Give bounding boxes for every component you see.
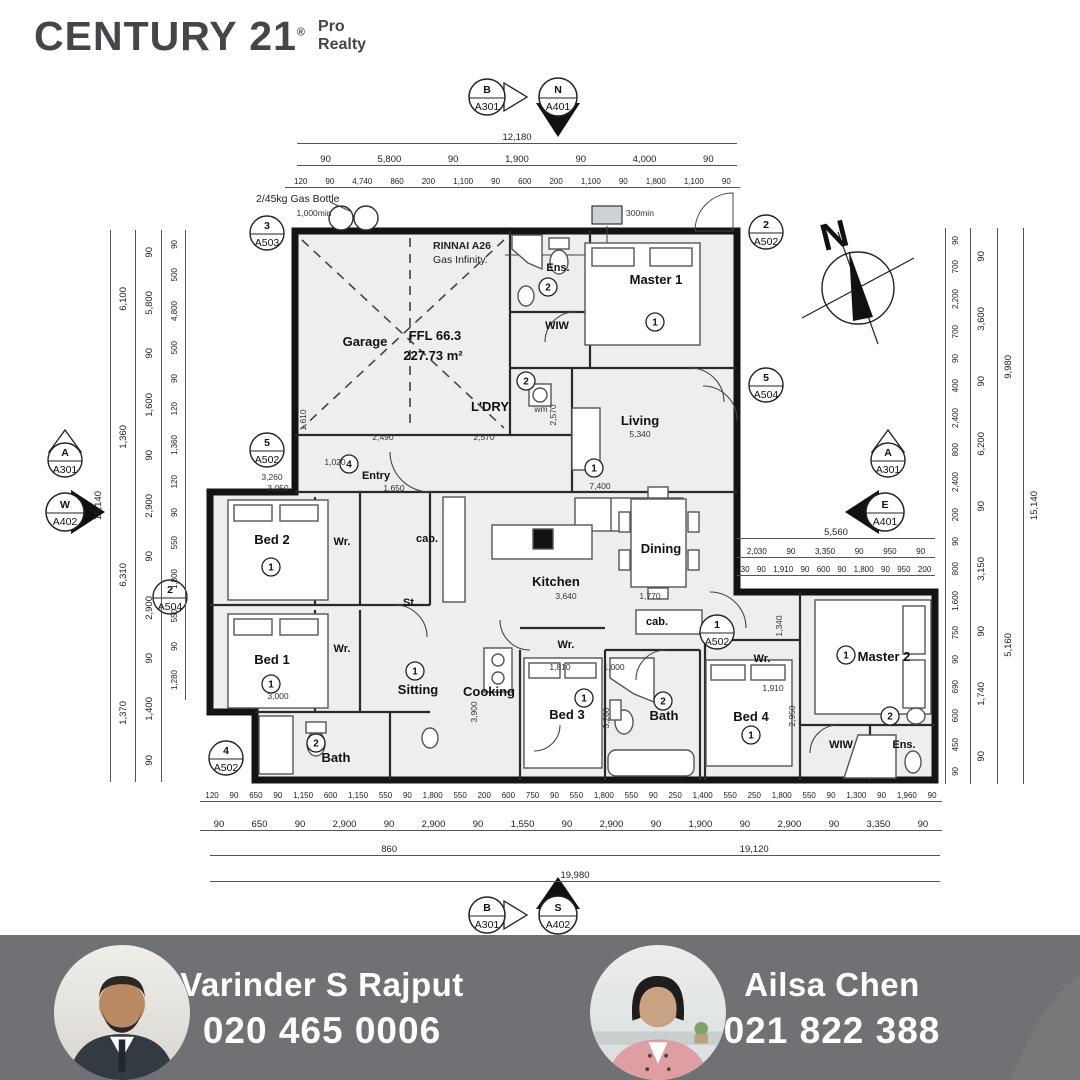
dim-chain-top-detail: 120904,7408602001,100906002001,100901,80… [285, 178, 740, 188]
marker-2-a502: 2 A502 [749, 215, 783, 249]
marker-label: 5 [763, 372, 769, 384]
room-label-master1: Master 1 [630, 272, 683, 287]
marker-label: S [554, 902, 561, 914]
dimension-value: 90 [229, 792, 240, 801]
dimension-value: 1,900 [688, 820, 714, 830]
room-label-cab1: cab. [416, 533, 438, 545]
dimension-value: 90 [927, 792, 938, 801]
dimension-value: 550 [171, 608, 179, 623]
dimension-value: 90 [880, 566, 891, 575]
dimension-value: 2,900 [421, 820, 447, 830]
interior-dim: 7,400 [589, 481, 611, 491]
dimension-value: 90 [145, 652, 155, 665]
marker-label: 2 [763, 219, 769, 231]
room-label-ens1: Ens. [546, 262, 569, 274]
dimension-value: 2,400 [952, 471, 960, 493]
ref-number: 2 [545, 283, 551, 294]
marker-sheet: A503 [255, 237, 280, 249]
room-label-wr-bed2: Wr. [334, 536, 351, 548]
interior-dim: 3,050 [267, 483, 289, 493]
room-label-entry: Entry [362, 470, 391, 482]
dimension-value: 1,740 [977, 681, 987, 707]
dimension-value: 90 [145, 246, 155, 259]
dimension-value: 1,900 [504, 155, 530, 165]
dimension-value: 5,560 [823, 528, 849, 538]
room-label-bed2: Bed 2 [254, 532, 289, 547]
room-label-cooking: Cooking [463, 684, 515, 699]
agent-info-ailsa: Ailsa Chen 021 822 388 [632, 966, 1032, 1052]
dimension-value: 90 [915, 548, 926, 557]
dimension-value: 550 [452, 792, 467, 801]
dimension-value: 15,140 [94, 490, 104, 521]
dim-chain-right-overall: 15,140 [1023, 228, 1046, 784]
marker-sheet: A502 [705, 636, 730, 648]
dimension-value: 1,400 [145, 696, 155, 722]
dimension-value: 15,140 [1030, 490, 1040, 521]
dimension-value: 90 [574, 155, 587, 165]
interior-dim: 1,910 [762, 683, 784, 693]
dimension-value: 3,350 [866, 820, 892, 830]
dimension-value: 500 [171, 340, 179, 355]
interior-dim: 1,020 [324, 457, 346, 467]
dimension-value: 550 [171, 535, 179, 550]
dimension-value: 90 [836, 566, 847, 575]
dimension-value: 200 [477, 792, 492, 801]
dimension-value: 2,030 [746, 548, 768, 557]
dimension-value: 950 [896, 566, 911, 575]
marker-b-a301-bottom: B A301 [469, 897, 527, 933]
dimension-value: 1,800 [171, 568, 179, 590]
dimension-value: 1,800 [853, 566, 875, 575]
interior-dim: 3,000 [267, 691, 289, 701]
interior-dim: 3,260 [261, 472, 283, 482]
dimension-value: 3,600 [977, 306, 987, 332]
dimension-value: 90 [171, 641, 179, 652]
dimension-value: 90 [854, 548, 865, 557]
ffl-label: FFL 66.3 [409, 328, 462, 343]
dim-chain-right-detail: 903,600906,200903,150901,74090 [970, 228, 993, 784]
interior-dim: 2,570 [548, 404, 558, 426]
marker-sheet: A502 [214, 762, 239, 774]
dim-chain-right-inner: 907002,200700904002,4008002,400200908001… [945, 228, 966, 784]
dimension-value: 90 [272, 792, 283, 801]
dimension-value: 1,600 [952, 590, 960, 612]
dimension-value: 2,200 [952, 288, 960, 310]
ref-number: 2 [887, 712, 893, 723]
dimension-value: 1,910 [772, 566, 794, 575]
dimension-value: 90 [171, 373, 179, 384]
dimension-value: 90 [952, 766, 960, 777]
dimension-value: 550 [802, 792, 817, 801]
dim-chain-bottom-sub: 86019,120 [210, 845, 940, 856]
ref-number: 1 [268, 563, 274, 574]
dimension-value: 690 [952, 679, 960, 694]
marker-4-a502: 4 A502 [209, 741, 243, 775]
dimension-value: 90 [472, 820, 485, 830]
compass-rose: N [802, 212, 914, 344]
ref-number: 1 [268, 680, 274, 691]
dimension-value: 600 [816, 566, 831, 575]
dimension-value: 90 [917, 820, 930, 830]
room-label-cab2: cab. [646, 616, 668, 628]
dimension-value: 90 [145, 754, 155, 767]
dimension-value: 2,400 [952, 407, 960, 429]
dimension-value: 750 [525, 792, 540, 801]
marker-a-a301-right: A A301 [871, 430, 905, 477]
dimension-value: 6,200 [977, 431, 987, 457]
dimension-value: 2,900 [332, 820, 358, 830]
marker-label: B [483, 84, 491, 96]
marker-1-a502: 1 A502 [700, 615, 734, 649]
dimension-value: 90 [977, 250, 987, 263]
dimension-value: 1,150 [347, 792, 369, 801]
dimension-value: 2,900 [777, 820, 803, 830]
interior-dim: 1,650 [383, 483, 405, 493]
dimension-value: 90 [952, 536, 960, 547]
interior-dim: 5,340 [629, 429, 651, 439]
dimension-value: 2,900 [145, 595, 155, 621]
room-label-kitchen: Kitchen [532, 574, 580, 589]
dimension-value: 90 [721, 178, 732, 187]
gas-bottles [329, 206, 378, 230]
dimension-value: 550 [624, 792, 639, 801]
dimension-value: 5,160 [1004, 632, 1014, 658]
interior-dim: 1,810 [549, 662, 571, 672]
dimension-value: 1,400 [692, 792, 714, 801]
dimension-value: 120 [171, 401, 179, 416]
dimension-value: 700 [952, 259, 960, 274]
dimension-value: 4,000 [632, 155, 658, 165]
rinnai-note-line1: RINNAI A26 [433, 240, 491, 252]
dimension-value: 90 [828, 820, 841, 830]
dimension-value: 90 [739, 820, 752, 830]
dimension-value: 3,150 [977, 556, 987, 582]
dimension-value: 860 [389, 178, 404, 187]
dimension-value: 90 [952, 353, 960, 364]
dimension-value: 1,800 [645, 178, 667, 187]
dimension-value: 4,740 [351, 178, 373, 187]
room-label-bed3: Bed 3 [549, 707, 584, 722]
dim-chain-bottom-major: 90650902,900902,900901,550902,900901,900… [200, 820, 942, 831]
interior-dim: 3,640 [555, 591, 577, 601]
room-label-st: St. [403, 597, 417, 609]
marker-sheet: A301 [475, 101, 500, 113]
agent-name: Ailsa Chen [632, 966, 1032, 1004]
interior-dim: 1,770 [639, 591, 661, 601]
marker-n-a401-top: N A401 [536, 78, 580, 137]
dimension-value: 200 [917, 566, 932, 575]
dimension-value: 3,350 [814, 548, 836, 557]
marker-label: A [61, 447, 69, 459]
dimension-value: 6,310 [119, 562, 129, 588]
dimension-value: 90 [618, 178, 629, 187]
dimension-value: 90 [490, 178, 501, 187]
dimension-value: 860 [380, 845, 398, 855]
agent-info-varinder: Varinder S Rajput 020 465 0006 [122, 966, 522, 1052]
marker-sheet: A301 [53, 464, 78, 476]
dimension-value: 200 [421, 178, 436, 187]
ref-number: 4 [346, 460, 352, 471]
dimension-value: 2,900 [599, 820, 625, 830]
room-label-bed1: Bed 1 [254, 652, 289, 667]
dimension-value: 500 [171, 267, 179, 282]
dim-chain-right-major: 9,9805,160 [997, 228, 1020, 784]
dimension-value: 650 [248, 792, 263, 801]
dimension-value: 200 [952, 507, 960, 522]
marker-label: 5 [264, 437, 270, 449]
interior-dim: 2,570 [473, 432, 495, 442]
dimension-value: 90 [171, 507, 179, 518]
ref-number: 2 [313, 739, 319, 750]
marker-3-a503: 3 A503 [250, 216, 284, 250]
flyer-canvas: CENTURY 21® Pro Realty [0, 0, 1080, 1080]
marker-sheet: A502 [255, 454, 280, 466]
dim-chain-left-overall: 15,140 [88, 230, 111, 782]
dimension-value: 2,900 [145, 493, 155, 519]
room-label-wr-bed1: Wr. [334, 643, 351, 655]
dimension-value: 1,360 [119, 424, 129, 450]
dimension-value: 1,280 [171, 669, 179, 691]
marker-5-a502: 5 A502 [250, 433, 284, 467]
dim-chain-top-major: 905,800901,900904,00090 [297, 155, 737, 166]
room-label-wm: wm [533, 404, 547, 414]
dim-chain-left-detail: 905,800901,600902,900902,900901,40090 [139, 230, 162, 782]
dimension-value: 90 [549, 792, 560, 801]
room-label-dining: Dining [641, 541, 681, 556]
dimension-value: 120 [204, 792, 219, 801]
marker-sheet: A301 [475, 919, 500, 931]
dimension-value: 90 [447, 155, 460, 165]
interior-dim: 1,000 [603, 662, 625, 672]
dimension-value: 90 [294, 820, 307, 830]
marker-b-a301-top: B A301 [469, 79, 527, 115]
dimension-value: 450 [952, 737, 960, 752]
dimension-value: 90 [702, 155, 715, 165]
dimension-value: 1,800 [771, 792, 793, 801]
dimension-value: 90 [324, 178, 335, 187]
dimension-value: 600 [501, 792, 516, 801]
dimension-value: 4,800 [171, 300, 179, 322]
ref-number: 2 [660, 697, 666, 708]
dimension-value: 90 [952, 654, 960, 665]
marker-label: E [881, 499, 888, 511]
room-label-sitting: Sitting [398, 682, 438, 697]
marker-5-a504: 5 A504 [749, 368, 783, 402]
ref-number: 1 [412, 667, 418, 678]
marker-s-a402-bottom: S A402 [536, 877, 580, 934]
dimension-value: 1,800 [422, 792, 444, 801]
marker-label: 1 [714, 619, 720, 631]
dimension-value: 1,550 [510, 820, 536, 830]
marker-sheet: A301 [876, 464, 901, 476]
dim-chain-bottom-detail: 12090650901,1506001,150550901,8005502006… [200, 792, 942, 802]
interior-dim: 3,900 [469, 701, 479, 723]
ref-number: 2 [523, 377, 529, 388]
dim-chain-left-major: 6,1001,3606,3101,370 [113, 230, 136, 782]
dimension-value: 90 [756, 566, 767, 575]
dimension-value: 1,370 [119, 700, 129, 726]
dimension-value: 120 [293, 178, 308, 187]
dim-chain-wing-detail: 30901,91090600901,80090950200 [737, 566, 935, 576]
marker-sheet: A402 [546, 919, 571, 931]
dimension-value: 650 [251, 820, 269, 830]
area-label: 227.73 m² [403, 348, 463, 363]
interior-dim: 2,950 [787, 705, 797, 727]
dimension-value: 90 [977, 500, 987, 513]
dimension-value: 90 [977, 625, 987, 638]
dimension-value: 6,100 [119, 286, 129, 312]
dim-chain-top-overall: 12,180 [297, 133, 737, 144]
ref-number: 1 [748, 731, 754, 742]
dimension-value: 90 [826, 792, 837, 801]
dimension-value: 1,800 [593, 792, 615, 801]
dimension-value: 1,100 [452, 178, 474, 187]
interior-dim: 1,610 [298, 409, 308, 431]
dimension-value: 1,300 [845, 792, 867, 801]
dimension-value: 12,180 [501, 133, 532, 143]
room-label-wr-bed4: Wr. [754, 653, 771, 665]
dimension-value: 600 [952, 708, 960, 723]
dimension-value: 90 [977, 750, 987, 763]
dimension-value: 120 [171, 474, 179, 489]
room-label-ens2: Ens. [892, 739, 915, 751]
ref-number: 1 [843, 651, 849, 662]
room-label-bath1: Bath [322, 750, 351, 765]
dimension-value: 750 [952, 625, 960, 640]
agent-name: Varinder S Rajput [122, 966, 522, 1004]
marker-a-a301-left: A A301 [48, 430, 82, 477]
marker-label: 4 [223, 745, 229, 757]
dimension-value: 800 [952, 442, 960, 457]
dimension-value: 90 [383, 820, 396, 830]
room-label-ldry: L'DRY [471, 399, 509, 414]
dimension-value: 90 [876, 792, 887, 801]
room-label-living: Living [621, 413, 659, 428]
rinnai-note-line2: Gas Infinity. [433, 254, 488, 266]
dimension-value: 90 [648, 792, 659, 801]
dimension-value: 90 [561, 820, 574, 830]
marker-label: N [554, 84, 562, 96]
dimension-value: 90 [145, 347, 155, 360]
room-label-bed4: Bed 4 [733, 709, 769, 724]
dimension-value: 90 [319, 155, 332, 165]
dimension-value: 90 [213, 820, 226, 830]
room-label-master2: Master 2 [858, 649, 911, 664]
dimension-value: 19,980 [559, 871, 590, 881]
ref-number: 1 [581, 694, 587, 705]
dimension-value: 9,980 [1004, 354, 1014, 380]
dimension-value: 700 [952, 324, 960, 339]
marker-label: W [60, 499, 70, 511]
agent-phone: 021 822 388 [632, 1010, 1032, 1052]
dimension-value: 950 [882, 548, 897, 557]
ref-number: 1 [591, 464, 597, 475]
dimension-value: 90 [799, 566, 810, 575]
dimension-value: 550 [569, 792, 584, 801]
dimension-value: 1,100 [580, 178, 602, 187]
marker-label: 3 [264, 220, 270, 232]
marker-sheet: A401 [546, 101, 571, 113]
dimension-value: 400 [952, 378, 960, 393]
interior-dim: 1,000min [297, 208, 332, 218]
dimension-value: 30 [740, 566, 751, 575]
dimension-value: 550 [722, 792, 737, 801]
dimension-value: 200 [548, 178, 563, 187]
marker-label: A [884, 447, 892, 459]
dimension-value: 250 [667, 792, 682, 801]
dimension-value: 90 [785, 548, 796, 557]
dimension-value: 90 [977, 375, 987, 388]
dim-chain-wing-overall: 5,560 [737, 528, 935, 539]
dimension-value: 90 [650, 820, 663, 830]
dimension-value: 1,360 [171, 434, 179, 456]
dimension-value: 1,600 [145, 392, 155, 418]
room-label-wr-bed3: Wr. [558, 639, 575, 651]
dimension-value: 1,100 [683, 178, 705, 187]
gas-bottle-note: 2/45kg Gas Bottle [256, 193, 340, 205]
dimension-value: 5,800 [376, 155, 402, 165]
marker-sheet: A402 [53, 516, 78, 528]
dim-chain-wing-major: 2,030903,3509095090 [737, 548, 935, 558]
dim-chain-bottom-overall: 19,980 [210, 871, 940, 882]
room-label-wiw1: WIW [545, 320, 569, 332]
rinnai-unit [592, 206, 622, 224]
dimension-value: 19,120 [739, 845, 770, 855]
dimension-value: 90 [952, 235, 960, 246]
interior-dim: 1,340 [774, 615, 784, 637]
ref-number: 1 [652, 318, 658, 329]
dimension-value: 90 [402, 792, 413, 801]
marker-sheet: A401 [873, 516, 898, 528]
dimension-value: 800 [952, 561, 960, 576]
dimension-value: 550 [378, 792, 393, 801]
marker-label: B [483, 902, 491, 914]
dimension-value: 1,960 [896, 792, 918, 801]
dimension-value: 1,150 [292, 792, 314, 801]
room-label-wiw2: WIW [829, 739, 853, 751]
dimension-value: 90 [145, 550, 155, 563]
dimension-value: 600 [517, 178, 532, 187]
dim-chain-left-inner: 905004,800500901201,360120905501,8005509… [165, 230, 186, 700]
marker-sheet: A504 [754, 389, 779, 401]
agent-phone: 020 465 0006 [122, 1010, 522, 1052]
dimension-value: 90 [145, 449, 155, 462]
dimension-value: 250 [747, 792, 762, 801]
compass-north-label: N [816, 212, 853, 259]
dimension-value: 600 [323, 792, 338, 801]
dimension-value: 90 [171, 239, 179, 250]
interior-dim: 300min [626, 208, 654, 218]
interior-dim: 3,260 [601, 707, 611, 729]
dimension-value: 5,800 [145, 290, 155, 316]
room-label-garage: Garage [343, 334, 388, 349]
interior-dim: 2,490 [372, 432, 394, 442]
marker-sheet: A502 [754, 236, 779, 248]
